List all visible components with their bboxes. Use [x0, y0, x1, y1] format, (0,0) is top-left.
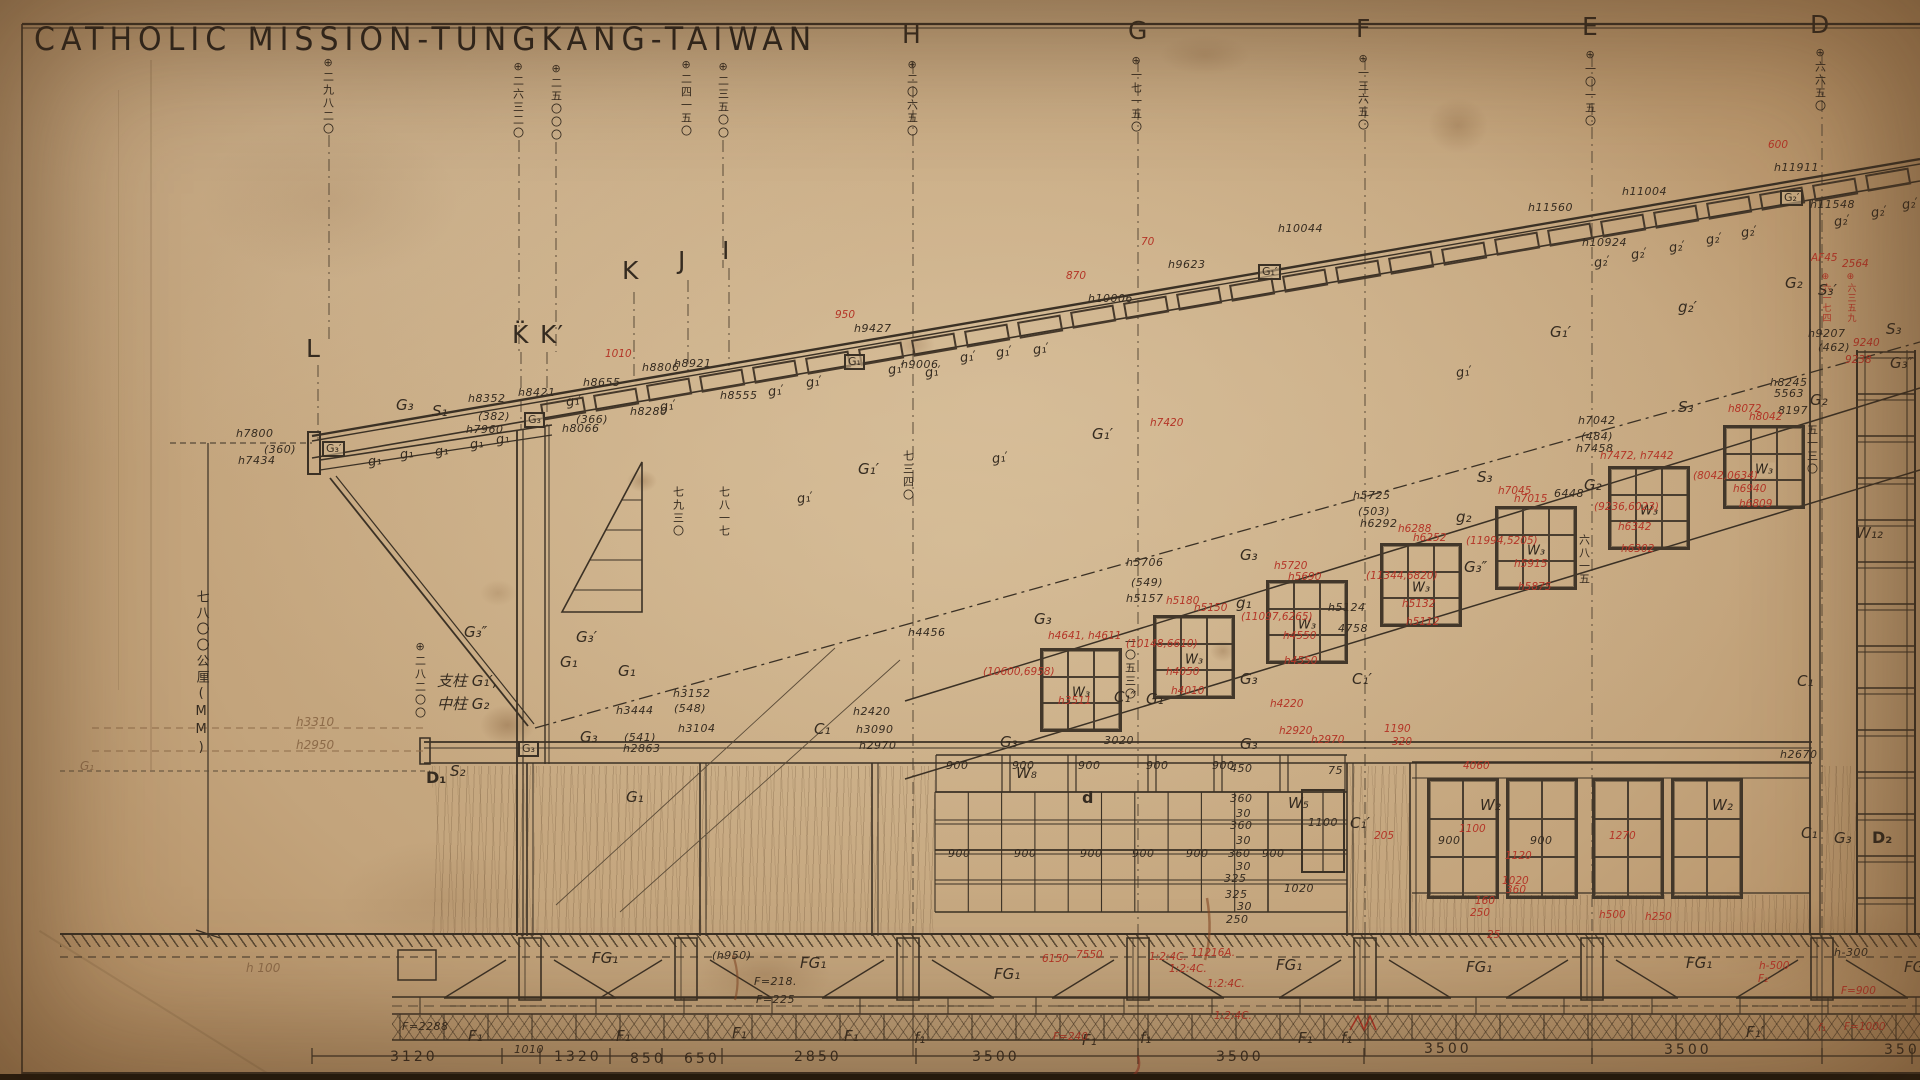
- annotation-text: L: [306, 336, 321, 362]
- annotation-text: (9236,6023): [1594, 502, 1659, 513]
- window-label: W₃: [1410, 581, 1432, 596]
- annotation-text: G₁′: [858, 462, 879, 478]
- annotation-text: h2950: [296, 739, 334, 752]
- annotation-text: g₁′: [659, 399, 677, 415]
- annotation-text: (548): [674, 703, 706, 715]
- annotation-text: FG₁: [1686, 956, 1712, 972]
- annotation-text: 2850: [794, 1050, 842, 1065]
- annotation-text: G₁: [618, 664, 636, 680]
- annotation-text: g₁′: [991, 451, 1009, 467]
- annotation-text: h10044: [1278, 223, 1323, 235]
- annotation-text: 900: [1146, 760, 1169, 772]
- annotation-text: h7472, h7442: [1600, 451, 1673, 462]
- annotation-text: C₁′: [1350, 816, 1370, 832]
- annotation-text: (549): [1131, 577, 1163, 589]
- annotation-text: ⊕六三五九: [1845, 272, 1854, 323]
- annotation-text: g₂′: [1833, 214, 1851, 230]
- annotation-text: 70: [1141, 237, 1154, 248]
- annotation-text: g₁′: [959, 350, 977, 366]
- annotation-text: h7800: [236, 428, 273, 440]
- annotation-text: 350: [1884, 1043, 1920, 1058]
- annotation-text: C₁: [1801, 826, 1818, 842]
- annotation-text: h-300: [1834, 947, 1868, 959]
- annotation-text: ⊕一三六五〇: [1357, 52, 1369, 132]
- window-w3: W₃: [1723, 425, 1805, 509]
- annotation-text: F₁: [844, 1029, 859, 1045]
- annotation-text: G₃: [1240, 672, 1258, 688]
- annotation-text: AF45: [1811, 253, 1838, 264]
- annotation-text: G₁′: [1258, 264, 1281, 280]
- annotation-text: h6302: [1621, 544, 1654, 555]
- annotation-text: g₂′: [1593, 255, 1611, 271]
- annotation-text: f₁: [1341, 1031, 1352, 1047]
- annotation-text: g₁′: [995, 345, 1013, 361]
- annotation-text: h11004: [1622, 186, 1667, 198]
- drawing-title: CATHOLIC MISSION-TUNGKANG-TAIWAN: [34, 21, 817, 59]
- annotation-text: G₃: [1834, 831, 1852, 847]
- annotation-text: FG₁: [1904, 960, 1920, 976]
- annotation-text: C₁: [1797, 674, 1814, 690]
- annotation-text: 六八一五: [1578, 534, 1590, 586]
- annotation-text: g₁′: [1032, 342, 1050, 358]
- annotation-text: 3500: [972, 1050, 1020, 1065]
- annotation-text: ⊕二四一五〇: [680, 58, 692, 138]
- annotation-text: 30: [1236, 861, 1251, 873]
- annotation-text: h5150: [1194, 603, 1227, 614]
- annotation-text: (11994,5205): [1466, 536, 1538, 547]
- annotation-text: ⊕一〇一五〇: [1584, 48, 1596, 128]
- annotation-text: h6342: [1618, 522, 1651, 533]
- annotation-text: h11911: [1774, 162, 1819, 174]
- annotation-text: F=218.: [754, 976, 797, 988]
- annotation-text: h9623: [1168, 259, 1205, 271]
- annotation-text: G₃: [518, 741, 539, 757]
- annotation-text: h8555: [720, 390, 757, 402]
- annotation-text: 250: [1470, 908, 1490, 919]
- annotation-text: 30: [1236, 808, 1251, 820]
- annotation-text: h8655: [583, 377, 620, 389]
- annotation-text: g₁′: [805, 375, 823, 391]
- annotation-text: h7420: [1150, 418, 1183, 429]
- annotation-text: ⊕二九八二〇: [322, 56, 334, 136]
- annotation-text: K′: [540, 322, 564, 348]
- annotation-text: g₂′: [1678, 300, 1697, 316]
- annotation-text: 900: [946, 760, 969, 772]
- annotation-text: 1010: [514, 1044, 544, 1056]
- annotation-text: h7042: [1578, 415, 1615, 427]
- annotation-text: 9240: [1853, 338, 1880, 349]
- annotation-text: 30: [1237, 901, 1252, 913]
- annotation-text: ⊕二八二〇〇: [414, 640, 426, 720]
- annotation-text: 1100: [1308, 817, 1338, 829]
- annotation-text: h2970: [859, 740, 896, 752]
- annotation-text: 360: [1506, 885, 1526, 896]
- annotation-text: h250: [1645, 912, 1672, 923]
- annotation-text: D₂: [1872, 830, 1892, 847]
- annotation-text: G₃′: [576, 630, 597, 646]
- annotation-text: FG₁: [1276, 958, 1302, 974]
- annotation-text: 870: [1066, 271, 1086, 282]
- annotation-text: (366): [576, 414, 608, 426]
- annotation-text: 9238: [1845, 355, 1872, 366]
- annotation-text: I: [722, 238, 730, 264]
- annotation-text: 600: [1768, 140, 1788, 151]
- annotation-text: g₂′: [1740, 225, 1758, 241]
- annotation-text: 3500: [1424, 1042, 1472, 1057]
- annotation-text: 6150: [1042, 954, 1069, 965]
- annotation-text: 七三四〇: [902, 450, 914, 502]
- annotation-text: g₁: [434, 444, 449, 460]
- annotation-text: g₁′: [767, 384, 785, 400]
- annotation-text: 七八〇〇公厘(MM): [194, 590, 208, 758]
- annotation-text: g₁: [469, 437, 484, 453]
- annotation-text: G₃: [1034, 612, 1052, 628]
- annotation-text: 250: [1226, 914, 1249, 926]
- annotation-text: h4220: [1270, 699, 1303, 710]
- annotation-text: G₂′: [1780, 190, 1803, 206]
- annotation-text: (10148,6610): [1126, 639, 1198, 650]
- annotation-text: ⊕二五〇〇〇: [550, 62, 562, 142]
- annotation-text: G₁: [1146, 692, 1164, 708]
- annotation-text: 1100: [1459, 824, 1486, 835]
- annotation-text: F₁: [1298, 1031, 1313, 1047]
- annotation-text: 205: [1374, 831, 1394, 842]
- annotation-text: 160: [1475, 896, 1495, 907]
- annotation-text: C₁′: [1352, 672, 1372, 688]
- annotation-text: F=240: [1053, 1032, 1088, 1043]
- annotation-text: 360: [1228, 848, 1251, 860]
- annotation-text: G₃: [580, 730, 598, 746]
- annotation-text: S₂: [450, 764, 466, 780]
- annotation-text: h3310: [296, 716, 334, 729]
- annotation-text: h10924: [1582, 237, 1627, 249]
- annotation-text: W₂: [1712, 798, 1733, 814]
- annotation-text: 1:2:4C.: [1169, 964, 1207, 975]
- annotation-text: D₁: [426, 770, 446, 787]
- annotation-text: S₃: [1886, 322, 1902, 338]
- annotation-text: FG₁: [800, 956, 826, 972]
- annotation-text: h7015: [1514, 494, 1547, 505]
- annotation-text: h6252: [1413, 533, 1446, 544]
- annotation-text: h3511: [1058, 696, 1091, 707]
- annotation-text: F₁: [616, 1029, 631, 1045]
- annotation-text: h6292: [1360, 518, 1397, 530]
- annotation-text: W₂: [1480, 798, 1501, 814]
- annotation-text: 七八一七: [718, 486, 730, 538]
- annotation-text: 1120: [1505, 851, 1532, 862]
- annotation-text: g₂′: [1630, 247, 1648, 263]
- annotation-text: G₁: [80, 760, 94, 773]
- annotation-text: J: [678, 248, 686, 274]
- annotation-text: h4456: [908, 627, 945, 639]
- annotation-text: 900: [1530, 835, 1553, 847]
- annotation-text: 25: [1487, 930, 1500, 941]
- annotation-text: F₁′: [1746, 1025, 1764, 1041]
- annotation-text: f₁: [1818, 1023, 1826, 1034]
- annotation-text: ⊕二〇六五〇: [906, 58, 918, 138]
- annotation-text: (h950): [712, 950, 752, 962]
- annotation-text: C₁″: [1114, 690, 1136, 706]
- annotation-text: 900: [1186, 848, 1209, 860]
- annotation-text: d: [1082, 790, 1093, 807]
- wood-panel: [1347, 766, 1412, 934]
- annotation-text: G₂: [1810, 393, 1828, 409]
- wood-panel: [536, 766, 935, 934]
- wood-panel: [1822, 766, 1857, 934]
- annotation-text: g₁′: [924, 365, 942, 381]
- annotation-text: 五一三〇: [1806, 424, 1818, 476]
- annotation-text: h 100: [246, 962, 280, 975]
- annotation-text: (462): [1818, 342, 1850, 354]
- annotation-text: h5112: [1406, 617, 1439, 628]
- annotation-text: W₈: [1016, 766, 1037, 782]
- annotation-text: E: [1582, 14, 1599, 40]
- annotation-text: G₁′: [1550, 325, 1571, 341]
- annotation-text: h5725: [1353, 490, 1390, 502]
- annotation-text: h2420: [853, 706, 890, 718]
- annotation-text: g₂′: [1901, 197, 1919, 213]
- annotation-text: h-500: [1759, 961, 1790, 972]
- annotation-text: 900: [1262, 848, 1285, 860]
- annotation-text: h8421: [518, 387, 555, 399]
- annotation-text: F: [1356, 16, 1371, 42]
- annotation-text: G₃: [524, 412, 545, 428]
- annotation-text: S₁: [432, 404, 448, 420]
- annotation-text: 4758: [1338, 623, 1368, 635]
- annotation-text: 1:2:4C.: [1149, 952, 1187, 963]
- annotation-text: G₁: [560, 655, 578, 671]
- annotation-text: 900: [948, 848, 971, 860]
- annotation-text: h4550: [1283, 631, 1316, 642]
- annotation-text: (382): [478, 411, 510, 423]
- annotation-text: 900: [1014, 848, 1037, 860]
- window-w3: W₃: [1040, 648, 1122, 732]
- annotation-text: F₂: [1758, 974, 1768, 985]
- annotation-text: (503): [1358, 506, 1390, 518]
- annotation-text: h11548: [1810, 199, 1855, 211]
- drawing-sheet: CATHOLIC MISSION-TUNGKANG-TAIWAN LK̈K′KJ…: [0, 0, 1920, 1080]
- annotation-text: 2564: [1842, 259, 1869, 270]
- annotation-text: 8197: [1778, 405, 1808, 417]
- annotation-text: 950: [835, 310, 855, 321]
- annotation-text: h5157: [1126, 593, 1163, 605]
- annotation-text: (8042,0634): [1693, 471, 1758, 482]
- ground-hatch: [60, 935, 1920, 947]
- annotation-text: (10600,6958): [983, 667, 1055, 678]
- annotation-text: G₃″: [1890, 356, 1913, 372]
- annotation-text: g₂: [1456, 510, 1472, 526]
- annotation-text: h2863: [623, 743, 660, 755]
- annotation-text: 1270: [1609, 831, 1636, 842]
- annotation-text: G₃″: [1464, 560, 1487, 576]
- annotation-text: 900: [1080, 848, 1103, 860]
- annotation-text: h6809: [1739, 499, 1772, 510]
- annotation-text: 325: [1224, 873, 1247, 885]
- annotation-text: g₁: [367, 454, 382, 470]
- annotation-text: G₁: [844, 354, 865, 370]
- annotation-text: G₂: [1584, 478, 1602, 494]
- annotation-text: h5915: [1514, 559, 1547, 570]
- annotation-text: 900: [1132, 848, 1155, 860]
- sheet-bottom-edge: [0, 1074, 1920, 1080]
- annotation-text: 1:2:4C.: [1207, 979, 1245, 990]
- annotation-text: F=2288: [402, 1021, 449, 1033]
- annotation-text: 850: [630, 1052, 666, 1067]
- annotation-text: S₃: [1477, 470, 1493, 486]
- annotation-text: g₁′: [796, 491, 814, 507]
- annotation-text: G₃: [1000, 735, 1018, 751]
- annotation-text: 3500: [1664, 1043, 1712, 1058]
- annotation-text: h3090: [856, 724, 893, 736]
- annotation-text: H: [902, 22, 922, 48]
- annotation-text: 5563: [1774, 388, 1804, 400]
- annotation-text: 900: [1212, 760, 1235, 772]
- wood-panel: [432, 766, 535, 934]
- annotation-text: h3152: [673, 688, 710, 700]
- annotation-text: h5875: [1518, 582, 1551, 593]
- annotation-text: 3120: [390, 1050, 438, 1065]
- annotation-text: h4641, h4611: [1048, 631, 1121, 642]
- annotation-text: 1190: [1384, 724, 1411, 735]
- annotation-text: 360: [1230, 793, 1253, 805]
- annotation-text: h2970: [1311, 735, 1344, 746]
- annotation-text: 360: [1230, 820, 1253, 832]
- annotation-text: h2920: [1279, 726, 1312, 737]
- annotation-text: 6448: [1554, 488, 1584, 500]
- annotation-text: 1010: [605, 349, 632, 360]
- annotation-text: g₁′: [565, 394, 583, 410]
- annotation-text: f₁: [914, 1031, 925, 1047]
- annotation-text: h3104: [678, 723, 715, 735]
- annotation-text: h8921: [674, 358, 711, 370]
- annotation-text: f₁: [1140, 1031, 1151, 1047]
- annotation-text: h9207: [1808, 328, 1845, 340]
- annotation-text: h8352: [468, 393, 505, 405]
- annotation-text: h11560: [1528, 202, 1573, 214]
- annotation-text: 1:2:4C.: [1214, 1011, 1252, 1022]
- annotation-text: h5706: [1126, 557, 1163, 569]
- window-w3: W₃: [1495, 506, 1577, 590]
- annotation-text: 七九三〇: [672, 486, 684, 538]
- annotation-text: G₃′: [322, 441, 345, 457]
- annotation-text: (484): [1581, 431, 1613, 443]
- annotation-text: (11097,6265): [1241, 612, 1313, 623]
- annotation-text: K: [622, 258, 639, 284]
- annotation-text: G₃: [1240, 548, 1258, 564]
- annotation-text: 支柱 G₁′,: [437, 674, 498, 690]
- annotation-text: 900: [1438, 835, 1461, 847]
- annotation-text: ⊕一七一五〇: [1130, 54, 1142, 134]
- annotation-text: F₁: [732, 1026, 747, 1042]
- annotation-text: C₁: [814, 722, 831, 738]
- annotation-text: h4050: [1166, 667, 1199, 678]
- annotation-text: G₃: [396, 398, 414, 414]
- annotation-text: h4550: [1284, 656, 1317, 667]
- annotation-text: FG₁: [994, 967, 1020, 983]
- annotation-text: S₃′: [1818, 283, 1837, 299]
- annotation-text: h5132: [1402, 599, 1435, 610]
- annotation-text: 30: [1236, 835, 1251, 847]
- annotation-text: g₁: [495, 432, 510, 448]
- annotation-text: 650: [684, 1052, 720, 1067]
- annotation-text: g₂′: [1668, 240, 1686, 256]
- annotation-text: (11344,6820): [1366, 571, 1438, 582]
- annotation-text: 7550: [1076, 950, 1103, 961]
- annotation-text: W₁₂: [1856, 526, 1883, 542]
- annotation-text: G₃: [1240, 737, 1258, 753]
- annotation-text: 900: [1078, 760, 1101, 772]
- annotation-text: G₃″: [464, 625, 487, 641]
- annotation-text: 320: [1392, 737, 1412, 748]
- annotation-text: F=225: [756, 994, 795, 1006]
- annotation-text: ⊕六六五〇: [1814, 46, 1826, 113]
- annotation-text: F=1000: [1844, 1022, 1886, 1033]
- annotation-text: g₁: [1236, 596, 1252, 612]
- annotation-text: G₁′: [1092, 427, 1113, 443]
- annotation-text: 4060: [1463, 761, 1490, 772]
- annotation-text: g₁: [399, 447, 414, 463]
- annotation-text: h6940: [1733, 484, 1766, 495]
- annotation-text: F=900: [1841, 986, 1876, 997]
- annotation-text: g₂′: [1705, 232, 1723, 248]
- window-w3: W₃: [1380, 543, 1462, 627]
- annotation-text: FG₁: [1466, 960, 1492, 976]
- annotation-text: h5690: [1288, 572, 1321, 583]
- annotation-text: g₁′: [887, 362, 905, 378]
- annotation-text: h4010: [1171, 686, 1204, 697]
- annotation-text: h9427: [854, 323, 891, 335]
- annotation-text: 3020: [1104, 735, 1134, 747]
- annotation-text: 1020: [1284, 883, 1314, 895]
- annotation-text: G₁: [626, 790, 644, 806]
- annotation-text: S₃: [1678, 400, 1694, 416]
- annotation-text: FG₁: [592, 951, 618, 967]
- annotation-text: ⊕二三五〇〇: [717, 60, 729, 140]
- annotation-text: ⊕二六三二〇: [512, 60, 524, 140]
- annotation-text: 3500: [1216, 1050, 1264, 1065]
- annotation-text: 11216A.: [1191, 948, 1235, 959]
- annotation-text: h3444: [616, 705, 653, 717]
- annotation-text: g₁′: [1455, 365, 1473, 381]
- annotation-text: G₂: [1785, 276, 1803, 292]
- annotation-text: D: [1810, 12, 1830, 38]
- annotation-text: h7434: [238, 455, 275, 467]
- annotation-text: h10006: [1088, 293, 1133, 305]
- annotation-text: 1320: [554, 1050, 602, 1065]
- annotation-text: h5124: [1328, 602, 1365, 614]
- annotation-text: 中柱 G₂: [437, 697, 489, 713]
- annotation-text: W₅: [1288, 796, 1309, 812]
- annotation-text: 325: [1225, 889, 1248, 901]
- annotation-text: G: [1128, 18, 1148, 44]
- annotation-text: h8042: [1749, 412, 1782, 423]
- annotation-text: h2670: [1780, 749, 1817, 761]
- annotation-text: F₁: [468, 1029, 483, 1045]
- annotation-text: g₂′: [1870, 205, 1888, 221]
- annotation-text: h500: [1599, 910, 1626, 921]
- annotation-text: K̈: [512, 322, 529, 348]
- annotation-text: 75: [1328, 765, 1343, 777]
